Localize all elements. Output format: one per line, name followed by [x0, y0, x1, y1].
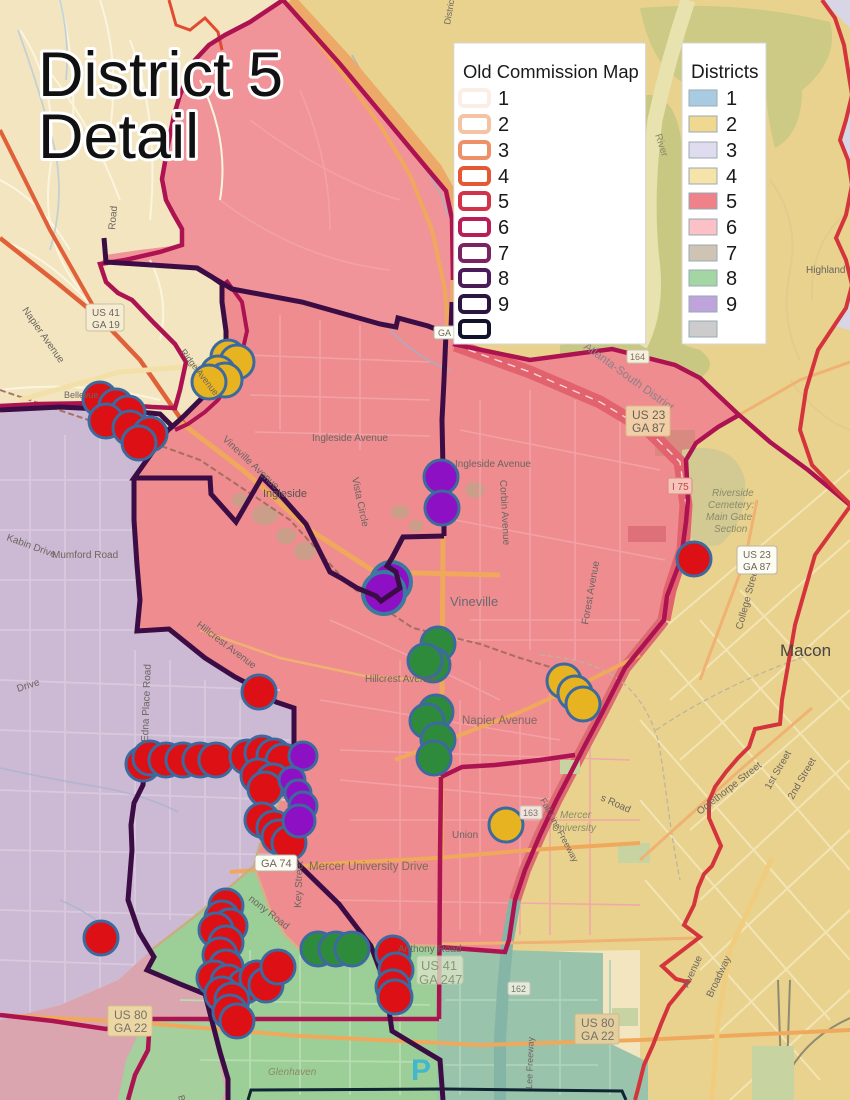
svg-text:5: 5	[726, 191, 737, 213]
svg-text:Lee Freeway: Lee Freeway	[524, 1036, 536, 1089]
svg-text:GA 87: GA 87	[632, 421, 666, 435]
svg-text:1: 1	[726, 88, 737, 110]
svg-text:Mumford Road: Mumford Road	[52, 550, 118, 561]
svg-text:Mercer: Mercer	[560, 810, 592, 821]
svg-text:Cemetery:: Cemetery:	[708, 500, 754, 511]
svg-text:GA: GA	[438, 328, 451, 338]
svg-text:Section: Section	[714, 524, 748, 535]
svg-text:Mercer University Drive: Mercer University Drive	[309, 861, 429, 873]
svg-text:9: 9	[726, 294, 737, 316]
svg-text:I 75: I 75	[672, 482, 689, 493]
svg-text:6: 6	[498, 217, 509, 239]
svg-text:US 23: US 23	[632, 408, 666, 422]
svg-text:Old Commission Map: Old Commission Map	[463, 61, 639, 82]
svg-text:9: 9	[498, 294, 509, 316]
svg-text:US 80: US 80	[581, 1016, 615, 1030]
svg-text:4: 4	[498, 166, 509, 188]
svg-text:Ingleside: Ingleside	[263, 488, 307, 500]
svg-text:Highland: Highland	[806, 265, 845, 276]
svg-text:Detail: Detail	[38, 102, 199, 172]
svg-text:Macon: Macon	[780, 641, 831, 660]
svg-text:University: University	[552, 823, 597, 834]
svg-text:Riverside: Riverside	[712, 488, 754, 499]
svg-text:Bellevue: Bellevue	[64, 390, 99, 400]
svg-text:4: 4	[726, 166, 737, 188]
svg-text:P: P	[411, 1054, 431, 1087]
svg-text:Napier Avenue: Napier Avenue	[462, 715, 537, 727]
svg-text:164: 164	[630, 352, 645, 362]
svg-text:5: 5	[498, 191, 509, 213]
svg-text:163: 163	[523, 808, 538, 818]
svg-text:7: 7	[726, 243, 737, 265]
svg-text:Anthony Road: Anthony Road	[398, 944, 461, 955]
svg-text:3: 3	[498, 140, 509, 162]
svg-text:GA 19: GA 19	[92, 320, 120, 331]
svg-text:GA 74: GA 74	[261, 858, 292, 870]
svg-text:7: 7	[498, 243, 509, 265]
svg-text:GA 22: GA 22	[581, 1029, 615, 1043]
svg-text:US 41: US 41	[92, 308, 120, 319]
svg-text:3: 3	[726, 140, 737, 162]
svg-text:Ingleside Avenue: Ingleside Avenue	[455, 459, 531, 470]
svg-text:Road: Road	[107, 205, 120, 230]
svg-text:Union: Union	[452, 830, 478, 841]
svg-text:GA 87: GA 87	[743, 562, 771, 573]
svg-text:6: 6	[726, 217, 737, 239]
svg-text:2: 2	[726, 114, 737, 136]
svg-text:US 41: US 41	[421, 958, 457, 973]
svg-text:Ingleside Avenue: Ingleside Avenue	[312, 433, 388, 444]
svg-text:8: 8	[498, 268, 509, 290]
svg-text:2: 2	[498, 114, 509, 136]
svg-text:8: 8	[726, 268, 737, 290]
svg-text:Districts: Districts	[691, 62, 759, 83]
svg-text:District 5: District 5	[38, 40, 283, 110]
svg-text:Hillcrest Avenue: Hillcrest Avenue	[365, 674, 437, 685]
svg-text:Glenhaven: Glenhaven	[268, 1067, 317, 1078]
svg-text:GA 22: GA 22	[114, 1021, 148, 1035]
svg-text:GA 247: GA 247	[419, 972, 462, 987]
svg-text:Main Gate: Main Gate	[706, 512, 753, 523]
svg-text:1: 1	[498, 88, 509, 110]
svg-text:US 23: US 23	[743, 550, 771, 561]
svg-text:Vineville: Vineville	[450, 594, 498, 609]
svg-text:162: 162	[511, 984, 526, 994]
svg-text:US 80: US 80	[114, 1008, 148, 1022]
